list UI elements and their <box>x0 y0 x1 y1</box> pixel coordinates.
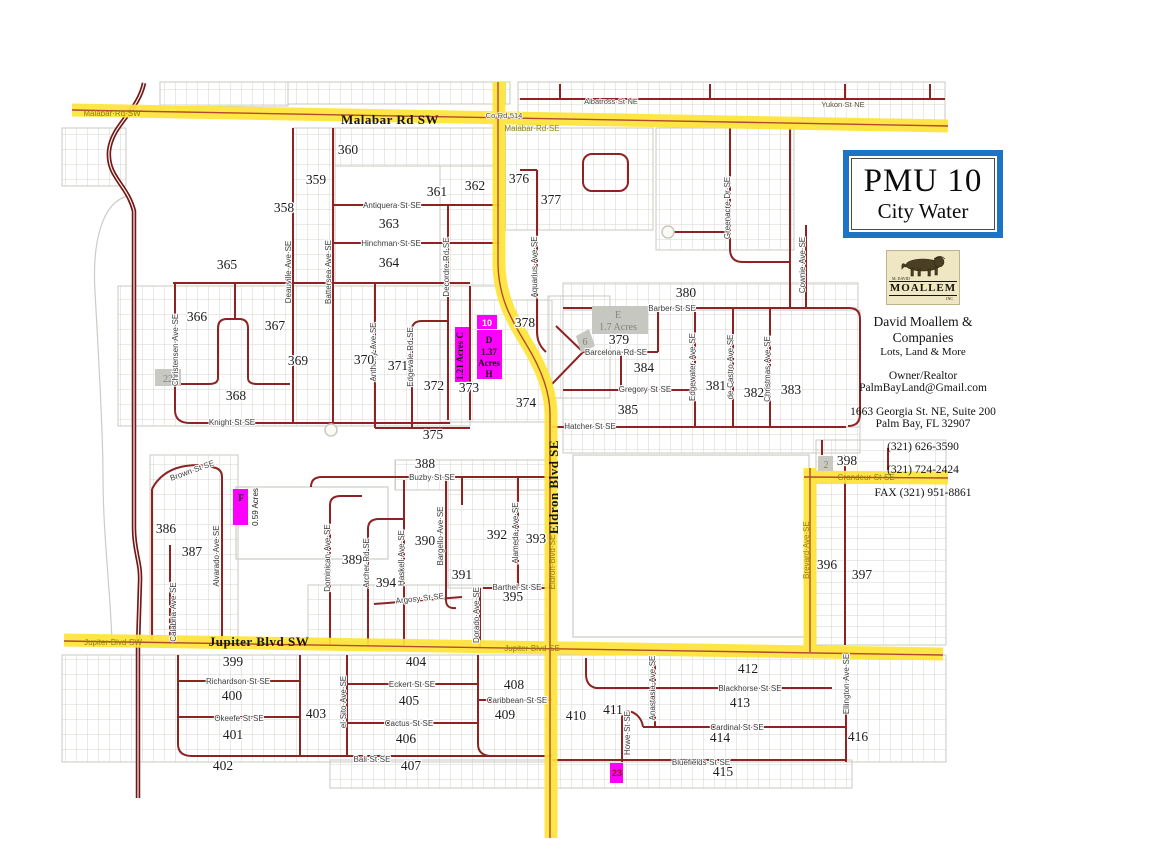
block-number: 383 <box>781 382 802 397</box>
block-number: 359 <box>306 172 327 187</box>
street-label: Archer·Rd·SE <box>362 538 371 588</box>
block-number: 402 <box>213 758 233 773</box>
street-label: Buzby·St·SE <box>409 473 455 482</box>
street-label: Richardson·St·SE <box>206 677 270 686</box>
parcel-label: Acres <box>478 358 500 368</box>
street-label: Deauville·Ave·SE <box>284 241 293 304</box>
parcel-label: 2 <box>824 460 829 471</box>
street-label: Cownie·Ave·SE <box>798 237 807 293</box>
block-number: 413 <box>730 695 751 710</box>
logo-sub-text: INC <box>889 296 953 301</box>
block-number: 395 <box>503 589 524 604</box>
street-label: Aquarius·Ave·SE <box>530 236 539 297</box>
street-label: Alameda·Ave·SE <box>511 502 520 563</box>
block-number: 391 <box>452 567 472 582</box>
owner-role: Owner/Realtor <box>843 370 1003 382</box>
parcel-label: 0.59 Acres <box>251 488 260 526</box>
block-number: 400 <box>222 688 243 703</box>
street-label: Anastasia·Ave·SE <box>648 656 657 721</box>
block-number: 366 <box>187 309 208 324</box>
block-number: 380 <box>676 285 697 300</box>
street-label: Gregory·St·SE <box>619 385 671 394</box>
street-label: Haskell·Ave·SE <box>397 530 406 586</box>
block-number: 381 <box>706 378 726 393</box>
plat-subtitle: City Water <box>854 199 992 223</box>
block-number: 414 <box>710 730 731 745</box>
parcel-label: 1.37 <box>481 347 497 357</box>
street-label: Alvarado·Ave·SE <box>212 525 221 586</box>
block-number: 394 <box>376 575 397 590</box>
lion-icon <box>893 253 953 277</box>
street-label: Co·Rd·514 <box>486 111 523 120</box>
street-label: Caribbean·St·SE <box>487 696 547 705</box>
block-number: 393 <box>526 531 547 546</box>
street-label: Brevard·Ave·SE <box>802 521 811 579</box>
block-number: 377 <box>541 192 562 207</box>
block-number: 364 <box>379 255 400 270</box>
block-number: 407 <box>401 758 422 773</box>
block-number: 390 <box>415 533 436 548</box>
block-number: 370 <box>354 352 375 367</box>
street-label: Ellington·Ave·SE <box>842 654 851 714</box>
block-number: 406 <box>396 731 417 746</box>
flyer-page: 1.21 Acres CD1.37AcresH10F0.59 Acres23E1… <box>0 0 1152 864</box>
phone-1: (321) 626-3590 <box>843 441 1003 453</box>
block-number: 416 <box>848 729 869 744</box>
street-label: Christmas·Ave·SE <box>763 336 772 402</box>
block-number: 405 <box>399 693 420 708</box>
block-number: 396 <box>817 557 838 572</box>
street-label: Jupiter·Blvd·SW <box>84 638 142 647</box>
street-label: Hatcher·St·SE <box>564 422 616 431</box>
plat-title-box: PMU 10 City Water <box>843 150 1003 238</box>
block-number: 362 <box>465 178 485 193</box>
block-number: 386 <box>156 521 177 536</box>
block-number: 368 <box>226 388 247 403</box>
street-label: Edgewater·Ave·SE <box>688 333 697 401</box>
block-number: 384 <box>634 360 655 375</box>
street-label: Cactus·St·SE <box>385 719 433 728</box>
street-label: Edgevale·Rd·SE <box>406 327 415 387</box>
street-label: Barber·St·SE <box>648 304 696 313</box>
block-number: 373 <box>459 380 480 395</box>
street-label: Blackhorse·St·SE <box>718 684 781 693</box>
block-number: 374 <box>516 395 537 410</box>
block-number: 412 <box>738 661 758 676</box>
block-number: 365 <box>217 257 238 272</box>
parcel-label: 1.21 Acres C <box>455 332 465 380</box>
parcel-label: 6 <box>583 337 588 348</box>
block-number: 371 <box>388 358 408 373</box>
block-number: 360 <box>338 142 359 157</box>
lot-block <box>288 82 510 104</box>
street-label: Malabar·Rd·SE <box>504 124 559 133</box>
street-label: Calabria·Ave·SE <box>169 582 178 641</box>
lot-block <box>160 82 288 106</box>
street-label: Albatross·St·NE <box>584 97 638 106</box>
street-label: Yukon·St·NE <box>821 100 864 109</box>
street-label: Battersea·Ave·SE <box>324 240 333 304</box>
fax: FAX (321) 951-8861 <box>843 487 1003 499</box>
parcel-label: H <box>485 369 492 379</box>
block-number: 389 <box>342 552 363 567</box>
block-number: 397 <box>852 567 873 582</box>
street-label: Malabar Rd SW <box>341 112 439 127</box>
street-label: Hinchman·St·SE <box>361 239 421 248</box>
parcel-label: E <box>615 310 621 321</box>
block-number: 399 <box>223 654 244 669</box>
email: PalmBayLand@Gmail.com <box>843 382 1003 394</box>
block-number: 372 <box>424 378 444 393</box>
street-label: Decordre·Rd·SE <box>442 237 451 296</box>
street-label: de·Castro·Ave·SE <box>726 335 735 400</box>
parcel-label: 10 <box>482 318 492 328</box>
block-number: 415 <box>713 764 734 779</box>
block-number: 388 <box>415 456 436 471</box>
street-label: Jupiter·Blvd·SE <box>504 644 560 653</box>
street-label: Christensen·Ave·SE <box>171 314 180 386</box>
street-label: Jupiter Blvd SW <box>209 634 309 649</box>
block-number: 409 <box>495 707 516 722</box>
block-number: 361 <box>427 184 447 199</box>
street-label: Okeefe·St·SE <box>214 714 263 723</box>
street-label: Eldron·Blvd·SE <box>548 535 557 590</box>
lot-block <box>335 128 500 166</box>
street-label: Dominican·Ave·SE <box>323 524 332 591</box>
street-label: Dorado·Ave·SE <box>472 587 481 643</box>
block-number: 367 <box>265 318 286 333</box>
address-line2: Palm Bay, FL 32907 <box>843 418 1003 430</box>
street-label: Knight·St·SE <box>209 418 255 427</box>
phone-2: (321) 724-2424 <box>843 464 1003 476</box>
block-number: 401 <box>223 727 243 742</box>
street-label: Howe·St·SE <box>623 711 632 755</box>
block-number: 379 <box>609 332 630 347</box>
street-label: el·Sito·Ave·SE <box>339 676 348 728</box>
street-label: Malabar·Rd·SW <box>83 109 141 118</box>
block-number: 385 <box>618 402 639 417</box>
lot-block <box>518 82 945 99</box>
street-label: Bargello·Ave·SE <box>436 507 445 566</box>
block-number: 408 <box>504 677 525 692</box>
street-label: Eckert·St·SE <box>389 680 435 689</box>
plat-title: PMU 10 <box>854 163 992 199</box>
block-number: 378 <box>515 315 536 330</box>
street-label: Greenacre·Dr·SE <box>723 177 732 239</box>
block-number: 363 <box>379 216 400 231</box>
block-number: 382 <box>744 385 764 400</box>
street-label: Bali·St·SE <box>354 755 391 764</box>
info-panel: PMU 10 City Water M. DAVID MOALLEM I <box>843 150 1003 499</box>
company-name: David Moallem & Companies <box>843 314 1003 346</box>
company-tagline: Lots, Land & More <box>843 346 1003 358</box>
block-number: 403 <box>306 706 327 721</box>
block-number: 411 <box>603 702 623 717</box>
logo-brand-text: MOALLEM <box>889 281 957 296</box>
block-number: 387 <box>182 544 203 559</box>
block-number: 369 <box>288 353 309 368</box>
street-label: Antiquera·St·SE <box>363 201 421 210</box>
street-label: Barcelona·Rd·SE <box>585 348 647 357</box>
address-line1: 1663 Georgia St. NE, Suite 200 <box>843 406 1003 418</box>
block-number: 358 <box>274 200 295 215</box>
parcel-label: 23 <box>612 768 622 778</box>
parcel-label: F <box>238 493 244 503</box>
moallem-logo: M. DAVID MOALLEM INC <box>886 250 960 305</box>
street-label: Eldron Blvd SE <box>546 440 561 534</box>
block-number: 376 <box>509 171 530 186</box>
parcel-label: D <box>486 335 493 345</box>
block-number: 392 <box>487 527 507 542</box>
block-number: 410 <box>566 708 587 723</box>
block-number: 375 <box>423 427 444 442</box>
block-number: 404 <box>406 654 427 669</box>
